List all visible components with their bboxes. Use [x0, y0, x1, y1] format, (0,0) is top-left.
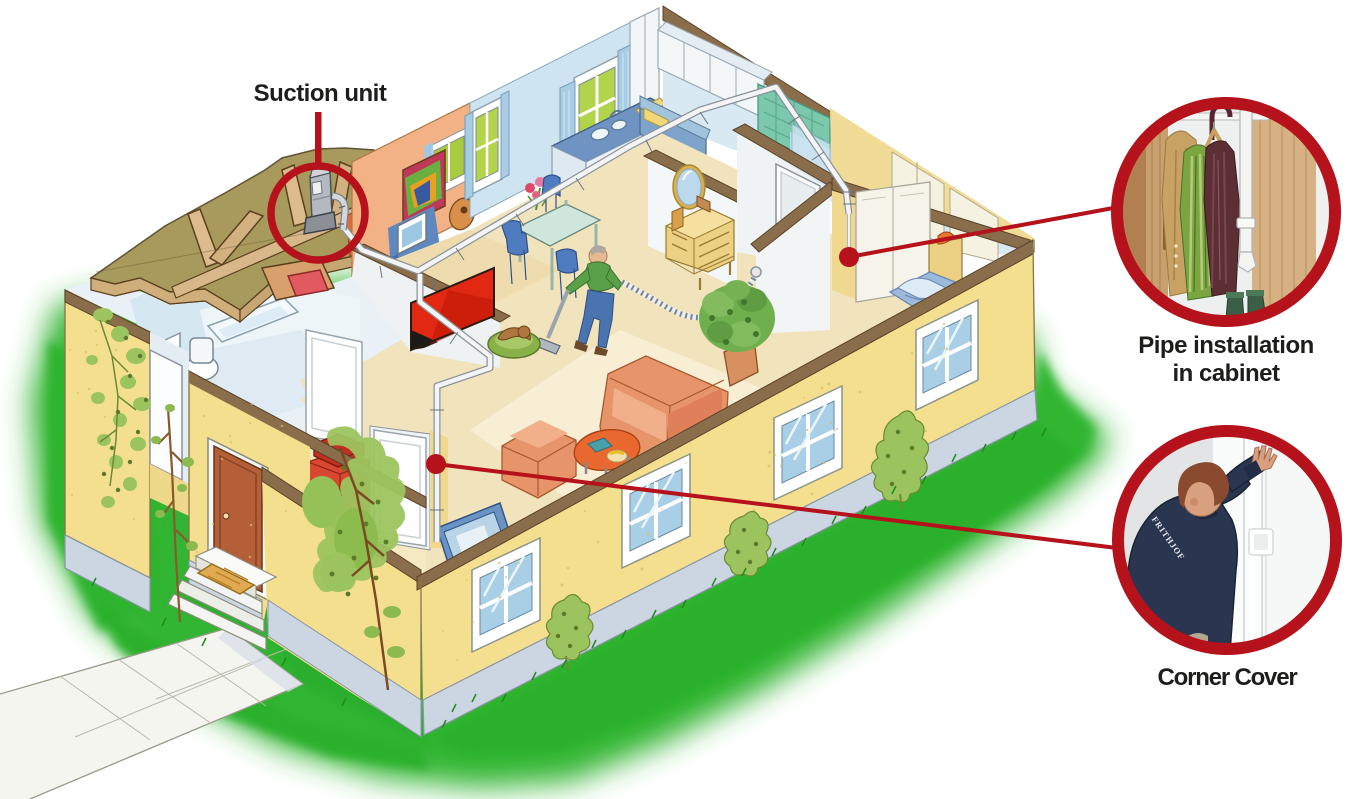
svg-text:Corner Cover: Corner Cover — [1158, 664, 1298, 691]
svg-text:Pipe installation: Pipe installation — [1138, 332, 1314, 359]
svg-text:in cabinet: in cabinet — [1172, 360, 1280, 387]
svg-text:Suction unit: Suction unit — [254, 80, 387, 107]
